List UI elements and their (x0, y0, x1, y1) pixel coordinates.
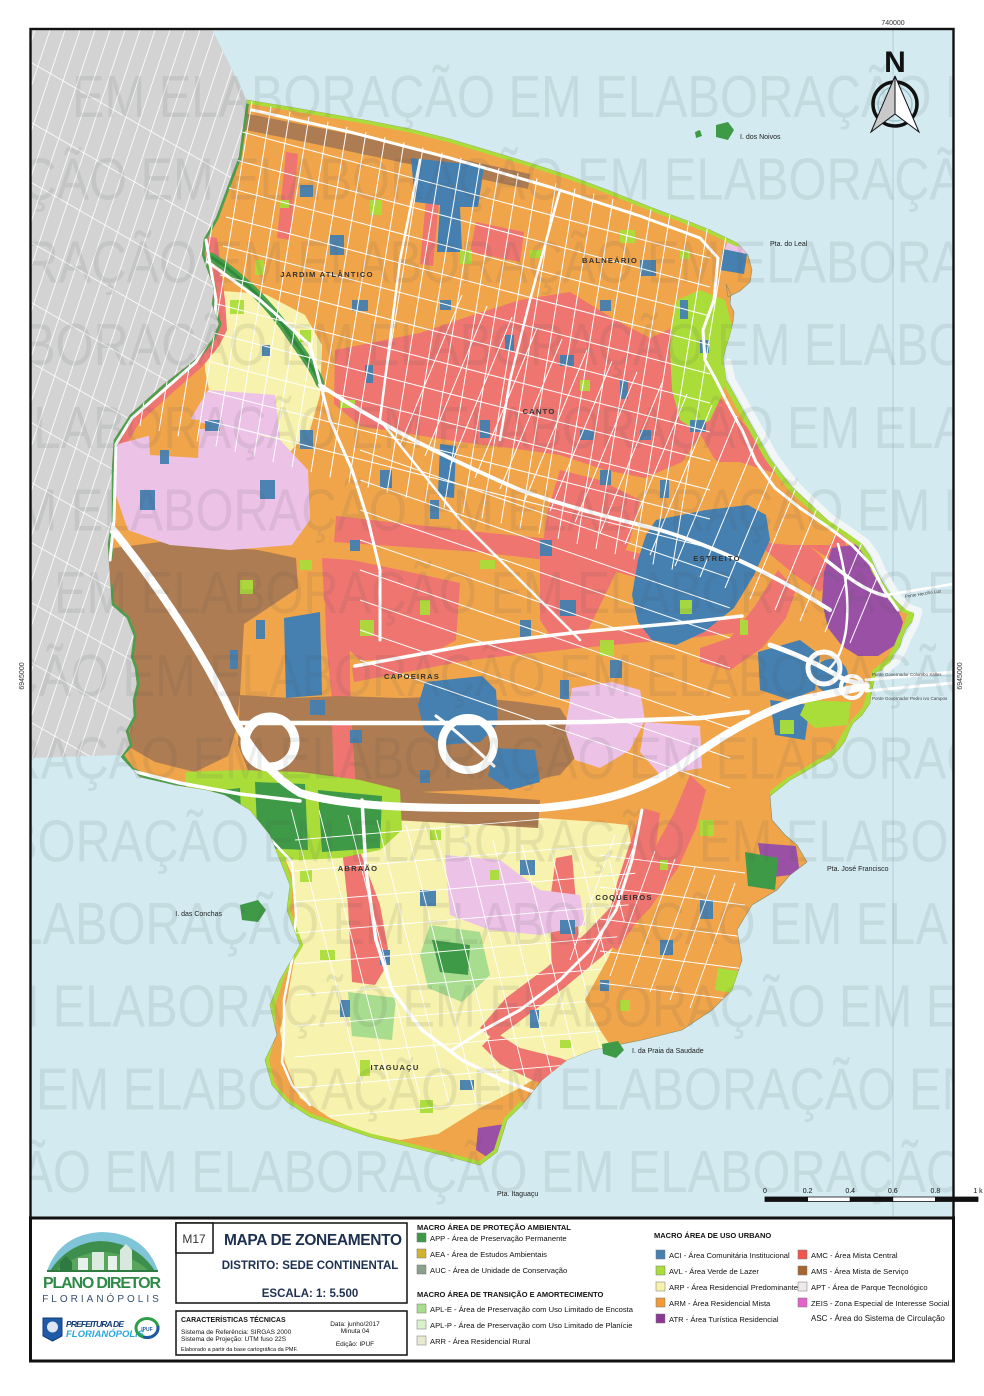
svg-text:AEA - Área de Estudos Ambienta: AEA - Área de Estudos Ambientais (430, 1250, 547, 1259)
svg-text:EM ELABORAÇÃO EM ELABORAÇÃO EM: EM ELABORAÇÃO EM ELABORAÇÃO EM ELABORAÇÃ… (0, 312, 984, 378)
svg-text:MACRO ÁREA DE TRANSIÇÃO E AMOR: MACRO ÁREA DE TRANSIÇÃO E AMORTECIMENTO (417, 1290, 604, 1299)
svg-text:Data: junho/2017: Data: junho/2017 (330, 1321, 380, 1328)
svg-text:ASC - Área do Sistema de Circu: ASC - Área do Sistema de Circulação (811, 1314, 945, 1323)
svg-text:MACRO ÁREA DE USO URBANO: MACRO ÁREA DE USO URBANO (654, 1231, 771, 1240)
svg-text:PREFEITURA DE: PREFEITURA DE (66, 1319, 124, 1329)
svg-text:ARP - Área Residencial Predomi: ARP - Área Residencial Predominante (669, 1283, 798, 1292)
svg-text:CARACTERÍSTICAS TÉCNICAS: CARACTERÍSTICAS TÉCNICAS (181, 1315, 286, 1324)
svg-text:PLANO DIRETOR: PLANO DIRETOR (43, 1275, 161, 1292)
svg-text:N: N (884, 46, 906, 79)
svg-text:EM ELABORAÇÃO EM ELABORAÇÃO EM: EM ELABORAÇÃO EM ELABORAÇÃO EM ELABORAÇÃ… (0, 726, 984, 792)
svg-text:AUC - Área de Unidade de Conse: AUC - Área de Unidade de Conservação (430, 1266, 567, 1275)
svg-text:FLORIANÓPOLIS: FLORIANÓPOLIS (42, 1292, 162, 1305)
svg-text:APL-E - Área de Preservação co: APL-E - Área de Preservação com Uso Limi… (430, 1305, 634, 1314)
svg-text:AMC - Área Mista Central: AMC - Área Mista Central (811, 1251, 898, 1260)
svg-text:APP - Área de Preservação Perm: APP - Área de Preservação Permanente (430, 1234, 567, 1243)
svg-text:EM ELABORAÇÃO EM ELABORAÇÃO EM: EM ELABORAÇÃO EM ELABORAÇÃO EM ELABORAÇÃ… (54, 560, 984, 626)
svg-text:0.4: 0.4 (845, 1188, 855, 1195)
svg-text:EM ELABORAÇÃO EM ELABORAÇÃO EM: EM ELABORAÇÃO EM ELABORAÇÃO EM ELABORAÇÃ… (0, 395, 984, 461)
svg-text:APL-P - Área de Preservação co: APL-P - Área de Preservação com Uso Limi… (430, 1321, 632, 1330)
svg-text:AMS - Área Mista de Serviço: AMS - Área Mista de Serviço (811, 1267, 908, 1276)
svg-text:Sistema de Referência: SIRGAS: Sistema de Referência: SIRGAS 2000 (181, 1329, 292, 1336)
svg-text:ATR - Área Turística Residenci: ATR - Área Turística Residencial (669, 1315, 779, 1324)
svg-text:0.8: 0.8 (931, 1188, 941, 1195)
svg-text:DISTRITO: SEDE CONTINENTAL: DISTRITO: SEDE CONTINENTAL (222, 1260, 399, 1272)
svg-text:Sistema de Projeção: UTM fuso: Sistema de Projeção: UTM fuso 22S (181, 1336, 287, 1343)
svg-text:1 k: 1 k (973, 1188, 983, 1195)
svg-text:EM ELABORAÇÃO EM ELABORAÇÃO EM: EM ELABORAÇÃO EM ELABORAÇÃO EM ELABORAÇÃ… (0, 974, 984, 1040)
svg-text:MACRO ÁREA DE PROTEÇÃO AMBIENT: MACRO ÁREA DE PROTEÇÃO AMBIENTAL (417, 1223, 571, 1232)
svg-text:EM ELABORAÇÃO EM ELABORAÇÃO EM: EM ELABORAÇÃO EM ELABORAÇÃO EM ELABORAÇÃ… (72, 64, 984, 130)
svg-text:ZEIS - Zona Especial de Intere: ZEIS - Zona Especial de Interesse Social (811, 1299, 950, 1308)
svg-text:EM ELABORAÇÃO EM ELABORAÇÃO EM: EM ELABORAÇÃO EM ELABORAÇÃO EM ELABORAÇÃ… (0, 147, 984, 213)
svg-text:0.2: 0.2 (803, 1188, 813, 1195)
svg-text:EM ELABORAÇÃO EM ELABORAÇÃO EM: EM ELABORAÇÃO EM ELABORAÇÃO EM ELABORAÇÃ… (36, 1056, 984, 1122)
svg-text:EM ELABORAÇÃO EM ELABORAÇÃO EM: EM ELABORAÇÃO EM ELABORAÇÃO EM ELABORAÇÃ… (0, 1139, 964, 1205)
svg-text:740000: 740000 (881, 20, 904, 27)
svg-text:ACI - Área Comunitária Institu: ACI - Área Comunitária Institucional (669, 1251, 790, 1260)
svg-text:I. dos Noivos: I. dos Noivos (740, 134, 781, 141)
svg-text:Elaborado a partir da base car: Elaborado a partir da base cartográfica … (181, 1347, 298, 1353)
svg-text:0.6: 0.6 (888, 1188, 898, 1195)
svg-text:EM ELABORAÇÃO EM ELABORAÇÃO EM: EM ELABORAÇÃO EM ELABORAÇÃO EM ELABORAÇÃ… (0, 808, 984, 874)
svg-text:ESCALA: 1: 5.500: ESCALA: 1: 5.500 (262, 1288, 359, 1300)
svg-text:IPUF: IPUF (141, 1327, 152, 1333)
svg-text:MAPA DE ZONEAMENTO: MAPA DE ZONEAMENTO (224, 1232, 402, 1249)
svg-text:EM ELABORAÇÃO EM ELABORAÇÃO EM: EM ELABORAÇÃO EM ELABORAÇÃO EM ELABORAÇÃ… (0, 891, 984, 957)
svg-text:0: 0 (763, 1188, 767, 1195)
svg-text:ARM - Área Residencial Mista: ARM - Área Residencial Mista (669, 1299, 771, 1308)
svg-text:I. da Praia da Saudade: I. da Praia da Saudade (632, 1048, 704, 1055)
svg-text:Minuta 04: Minuta 04 (341, 1328, 370, 1335)
svg-text:M17: M17 (182, 1232, 206, 1246)
svg-text:EM ELABORAÇÃO EM ELABORAÇÃO EM: EM ELABORAÇÃO EM ELABORAÇÃO EM ELABORAÇÃ… (0, 643, 982, 709)
svg-text:FLORIANÓPOLIS: FLORIANÓPOLIS (66, 1328, 145, 1340)
svg-text:ARR - Área Residencial Rural: ARR - Área Residencial Rural (430, 1337, 531, 1346)
svg-text:EM ELABORAÇÃO EM ELABORAÇÃO EM: EM ELABORAÇÃO EM ELABORAÇÃO EM ELABORAÇÃ… (0, 478, 984, 544)
svg-text:6945000: 6945000 (957, 662, 964, 689)
svg-text:Edição: IPUF: Edição: IPUF (336, 1341, 374, 1348)
svg-text:EM ELABORAÇÃO EM ELABORAÇÃO EM: EM ELABORAÇÃO EM ELABORAÇÃO EM ELABORAÇÃ… (0, 229, 984, 295)
svg-text:APT - Área de Parque Tecnológi: APT - Área de Parque Tecnológico (811, 1283, 928, 1292)
svg-text:AVL - Área Verde de Lazer: AVL - Área Verde de Lazer (669, 1267, 759, 1276)
svg-text:6945000: 6945000 (19, 662, 26, 689)
